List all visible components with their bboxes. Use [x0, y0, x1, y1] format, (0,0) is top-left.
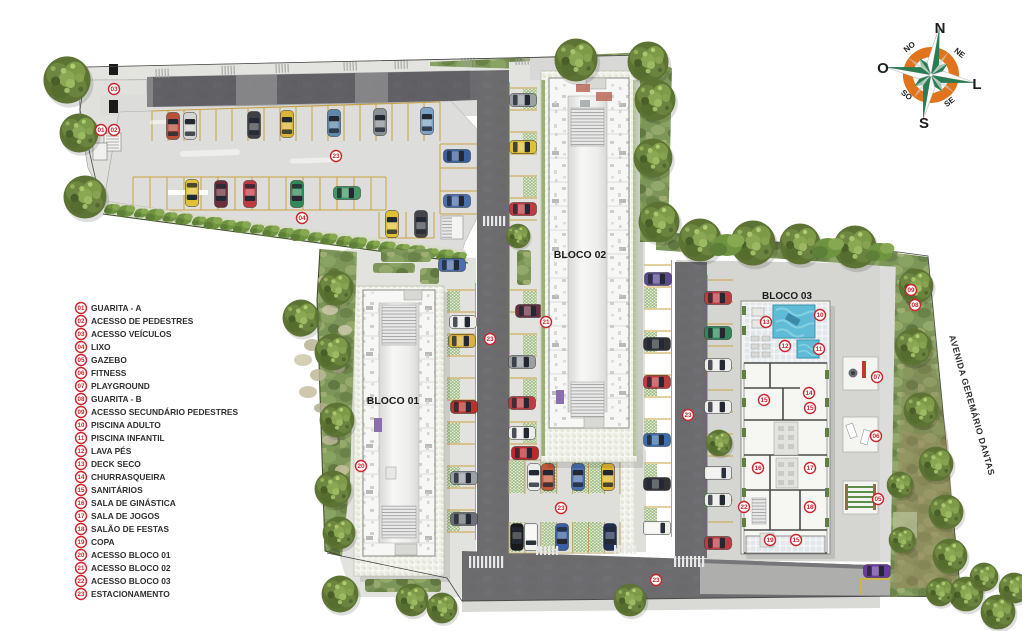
svg-text:FITNESS: FITNESS [91, 368, 127, 378]
svg-text:10: 10 [816, 312, 824, 319]
svg-text:14: 14 [78, 474, 85, 481]
svg-text:ACESSO BLOCO 01: ACESSO BLOCO 01 [91, 550, 171, 560]
svg-text:06: 06 [872, 433, 880, 440]
svg-text:18: 18 [78, 526, 85, 533]
svg-text:01: 01 [97, 127, 105, 134]
svg-text:17: 17 [806, 465, 814, 472]
svg-text:23: 23 [652, 577, 660, 584]
svg-text:22: 22 [78, 578, 85, 585]
svg-text:S: S [919, 115, 929, 132]
svg-text:20: 20 [357, 463, 365, 470]
svg-text:07: 07 [873, 374, 881, 381]
svg-text:08: 08 [78, 396, 85, 403]
svg-text:05: 05 [78, 357, 85, 364]
svg-text:04: 04 [298, 215, 306, 222]
svg-text:16: 16 [754, 465, 762, 472]
svg-text:05: 05 [874, 496, 882, 503]
svg-text:02: 02 [78, 318, 85, 325]
svg-text:ACESSO DE PEDESTRES: ACESSO DE PEDESTRES [91, 316, 194, 326]
svg-text:12: 12 [781, 343, 789, 350]
svg-text:13: 13 [762, 319, 770, 326]
svg-text:LIXO: LIXO [91, 342, 111, 352]
svg-text:ACESSO VEÍCULOS: ACESSO VEÍCULOS [91, 328, 172, 339]
svg-text:SANITÁRIOS: SANITÁRIOS [91, 484, 143, 495]
svg-text:GUARITA - B: GUARITA - B [91, 394, 142, 404]
svg-text:23: 23 [684, 412, 692, 419]
svg-text:18: 18 [806, 504, 814, 511]
svg-text:07: 07 [78, 383, 85, 390]
svg-text:13: 13 [78, 461, 85, 468]
svg-text:SALA DE JOGOS: SALA DE JOGOS [91, 511, 160, 521]
svg-text:11: 11 [78, 435, 85, 442]
svg-text:AVENIDA GEREMÁRIO DANTAS: AVENIDA GEREMÁRIO DANTAS [947, 334, 997, 477]
svg-text:LAVA PÉS: LAVA PÉS [91, 445, 132, 456]
svg-text:19: 19 [78, 539, 85, 546]
svg-text:SALÃO DE FESTAS: SALÃO DE FESTAS [91, 524, 169, 534]
svg-text:ESTACIONAMENTO: ESTACIONAMENTO [91, 589, 170, 599]
svg-text:PISCINA ADULTO: PISCINA ADULTO [91, 420, 161, 430]
svg-text:PISCINA INFANTIL: PISCINA INFANTIL [91, 433, 165, 443]
svg-text:19: 19 [766, 537, 774, 544]
svg-text:NE: NE [952, 46, 967, 60]
svg-text:BLOCO 03: BLOCO 03 [762, 291, 812, 302]
svg-text:21: 21 [542, 319, 550, 326]
svg-text:PLAYGROUND: PLAYGROUND [91, 381, 150, 391]
svg-text:21: 21 [78, 565, 85, 572]
svg-text:CHURRASQUEIRA: CHURRASQUEIRA [91, 472, 165, 482]
svg-text:O: O [877, 60, 889, 77]
svg-text:23: 23 [486, 336, 494, 343]
svg-text:SALA DE GINÁSTICA: SALA DE GINÁSTICA [91, 497, 176, 508]
svg-text:ACESSO BLOCO 02: ACESSO BLOCO 02 [91, 563, 171, 573]
svg-text:01: 01 [78, 305, 85, 312]
svg-text:BLOCO 02: BLOCO 02 [554, 249, 607, 261]
svg-text:23: 23 [332, 153, 340, 160]
svg-text:BLOCO 01: BLOCO 01 [367, 395, 420, 407]
svg-text:ACESSO BLOCO 03: ACESSO BLOCO 03 [91, 576, 171, 586]
svg-text:15: 15 [806, 405, 814, 412]
svg-text:10: 10 [78, 422, 85, 429]
svg-text:ACESSO SECUNDÁRIO PEDESTRES: ACESSO SECUNDÁRIO PEDESTRES [91, 406, 238, 417]
svg-text:15: 15 [78, 487, 85, 494]
svg-text:20: 20 [78, 552, 85, 559]
svg-text:GAZEBO: GAZEBO [91, 355, 127, 365]
svg-text:02: 02 [110, 127, 118, 134]
svg-text:GUARITA - A: GUARITA - A [91, 303, 141, 313]
svg-text:17: 17 [78, 513, 85, 520]
svg-text:22: 22 [740, 504, 748, 511]
svg-text:15: 15 [792, 537, 800, 544]
svg-text:12: 12 [78, 448, 85, 455]
svg-text:23: 23 [557, 505, 565, 512]
svg-text:23: 23 [78, 591, 85, 598]
svg-text:06: 06 [78, 370, 85, 377]
svg-text:DECK SECO: DECK SECO [91, 459, 141, 469]
svg-text:NO: NO [902, 40, 917, 54]
svg-text:COPA: COPA [91, 537, 115, 547]
svg-text:09: 09 [78, 409, 85, 416]
svg-text:15: 15 [760, 397, 768, 404]
svg-text:N: N [935, 20, 946, 37]
svg-text:14: 14 [805, 390, 813, 397]
svg-text:04: 04 [78, 344, 85, 351]
svg-text:16: 16 [78, 500, 85, 507]
svg-text:03: 03 [110, 86, 118, 93]
svg-text:L: L [972, 76, 981, 93]
svg-text:09: 09 [907, 287, 915, 294]
svg-text:03: 03 [78, 331, 85, 338]
svg-text:11: 11 [816, 346, 823, 353]
svg-text:08: 08 [911, 302, 919, 309]
